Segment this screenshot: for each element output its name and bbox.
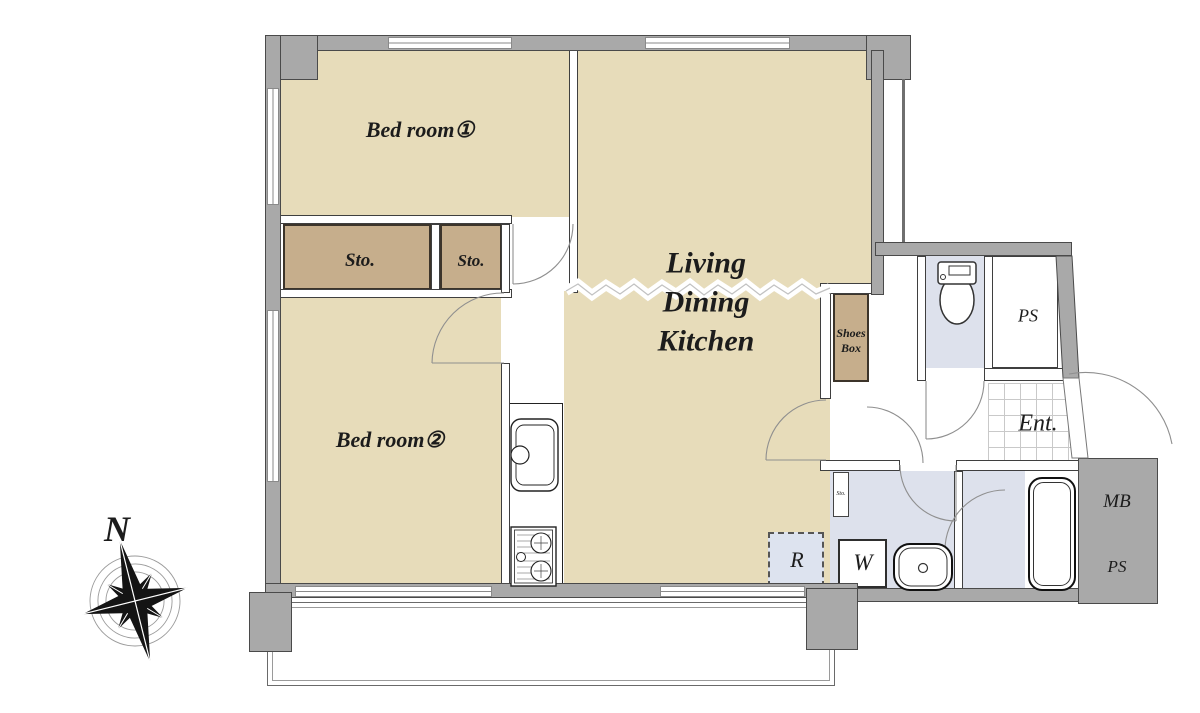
label-bedroom2: Bed room②: [336, 427, 444, 453]
label-shoes-box-line2: Box: [836, 341, 865, 356]
wall-balcony-stub-left: [249, 592, 292, 652]
wall-top: [265, 35, 911, 51]
label-entrance: Ent.: [1018, 411, 1057, 438]
wall-balcony-stub-right: [806, 588, 858, 650]
label-ps-top: PS: [1018, 306, 1038, 327]
label-compass-north: N: [104, 508, 130, 550]
door-arc-hallway: [867, 407, 923, 463]
label-refrigerator: R: [790, 547, 803, 573]
bathroom-floor: [963, 471, 1025, 590]
floor-plan: Bed room① Bed room② Living Dining Kitche…: [0, 0, 1200, 713]
door-arc-toilet: [926, 381, 984, 439]
toilet-room-floor: [926, 256, 984, 368]
label-storage-large: Sto.: [345, 250, 375, 272]
wall-washroom-top-right: [956, 460, 1085, 471]
label-ldk-line3: Kitchen: [658, 322, 755, 361]
window-left-bedroom2: [267, 310, 279, 482]
label-meter-box: MB: [1103, 491, 1130, 513]
wall-toilet-left: [917, 256, 926, 381]
balcony: [267, 602, 835, 686]
label-shoes-box: Shoes Box: [836, 326, 865, 356]
label-ldk-line2: Dining: [658, 283, 755, 322]
entrance-diagonal-wall: [1056, 256, 1079, 378]
vestibule-floor: [508, 215, 572, 405]
door-arc-entrance: [1069, 372, 1172, 444]
window-top-bedroom1: [388, 37, 512, 49]
wall-washroom-bathroom: [954, 471, 963, 592]
balcony-inner-line: [272, 607, 830, 681]
wall-mb-ps-block: [1078, 458, 1158, 604]
label-ldk: Living Dining Kitchen: [658, 244, 755, 361]
window-bottom-ldk: [660, 586, 805, 597]
window-left-bedroom1: [267, 88, 279, 205]
wall-toilet-right: [984, 256, 993, 381]
wall-ldk-right: [871, 50, 884, 295]
wall-storage-bottom: [278, 289, 512, 298]
wall-storage-top: [278, 215, 512, 224]
label-washroom-storage: Sto.: [836, 491, 845, 497]
wall-bottom-right: [856, 588, 1090, 602]
wall-bedroom1-ldk-divider: [569, 50, 578, 293]
label-ps-bottom: PS: [1108, 557, 1127, 577]
wall-storage-divider: [431, 224, 440, 290]
wall-washroom-top-left: [820, 460, 900, 471]
wall-toilet-block-top: [875, 242, 1072, 256]
wall-bedroom2-upper: [501, 224, 510, 293]
bathtub-icon: [1029, 478, 1075, 590]
wall-ldk-hall-vertical: [820, 293, 831, 399]
wall-ps-bottom: [984, 368, 1064, 381]
label-bedroom1: Bed room①: [366, 117, 474, 143]
label-washing-machine: W: [853, 550, 872, 576]
label-shoes-box-line1: Shoes: [836, 326, 865, 341]
kitchen-counter: [505, 403, 563, 588]
window-top-ldk: [645, 37, 790, 49]
compass-rose-icon: [67, 527, 202, 675]
window-bottom-bedroom2: [295, 586, 492, 597]
label-storage-small: Sto.: [458, 251, 485, 271]
wall-service-line: [902, 79, 905, 244]
wall-bedroom2-lower: [501, 363, 510, 588]
label-ldk-line1: Living: [658, 244, 755, 283]
